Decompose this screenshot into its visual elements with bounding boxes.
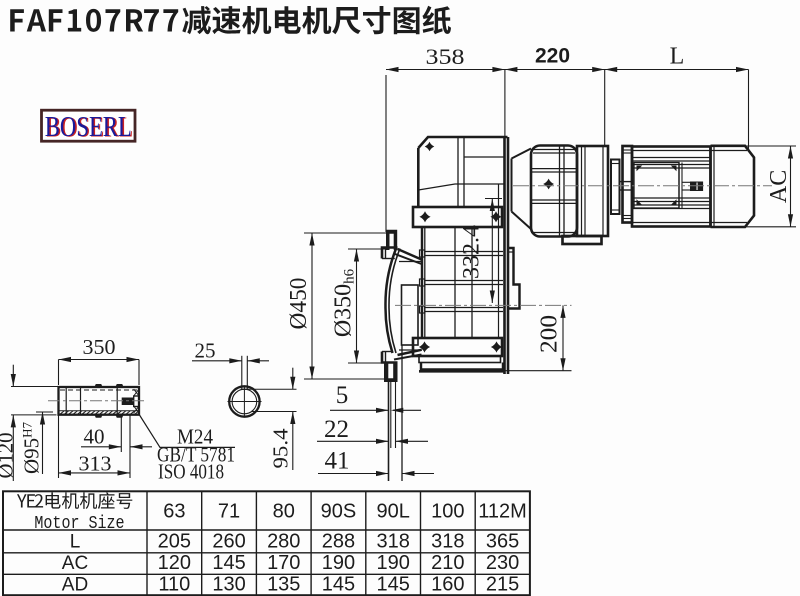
svg-text:332.4: 332.4 bbox=[459, 224, 484, 279]
svg-text:100: 100 bbox=[431, 501, 464, 523]
svg-text:Ø120: Ø120 bbox=[0, 433, 18, 479]
svg-text:40: 40 bbox=[84, 425, 105, 449]
svg-text:190: 190 bbox=[322, 552, 355, 574]
svg-text:170: 170 bbox=[267, 552, 300, 574]
svg-text:90L: 90L bbox=[376, 501, 409, 523]
svg-text:365: 365 bbox=[486, 531, 519, 553]
svg-text:230: 230 bbox=[486, 552, 519, 574]
svg-text:145: 145 bbox=[212, 552, 245, 574]
svg-text:AC: AC bbox=[62, 553, 88, 574]
svg-text:280: 280 bbox=[267, 531, 300, 553]
svg-text:313: 313 bbox=[79, 452, 112, 476]
svg-text:190: 190 bbox=[376, 552, 409, 574]
svg-text:205: 205 bbox=[158, 531, 191, 553]
svg-text:Ø350h6: Ø350h6 bbox=[331, 268, 358, 337]
svg-text:160: 160 bbox=[431, 574, 464, 596]
svg-text:5: 5 bbox=[336, 382, 349, 409]
svg-text:210: 210 bbox=[431, 552, 464, 574]
svg-text:41: 41 bbox=[325, 448, 350, 475]
svg-text:80: 80 bbox=[273, 501, 295, 523]
svg-text:318: 318 bbox=[431, 531, 464, 553]
svg-text:Ø450: Ø450 bbox=[286, 278, 312, 330]
svg-text:130: 130 bbox=[212, 574, 245, 596]
svg-text:63: 63 bbox=[163, 501, 185, 523]
svg-text:318: 318 bbox=[376, 531, 409, 553]
svg-text:Ø95H7: Ø95H7 bbox=[20, 421, 44, 474]
svg-text:BOSERL: BOSERL bbox=[45, 111, 132, 143]
svg-text:71: 71 bbox=[218, 501, 240, 523]
svg-text:145: 145 bbox=[322, 574, 355, 596]
svg-text:260: 260 bbox=[212, 531, 245, 553]
svg-text:358: 358 bbox=[426, 44, 465, 69]
svg-text:L: L bbox=[70, 532, 81, 553]
svg-text:288: 288 bbox=[322, 531, 355, 553]
svg-text:95.4: 95.4 bbox=[269, 428, 293, 469]
svg-text:110: 110 bbox=[158, 574, 190, 596]
svg-text:ISO 4018: ISO 4018 bbox=[158, 460, 224, 484]
svg-text:350: 350 bbox=[83, 335, 116, 359]
svg-text:22: 22 bbox=[324, 416, 349, 443]
svg-text:AC: AC bbox=[766, 170, 792, 203]
svg-text:200: 200 bbox=[537, 315, 563, 353]
svg-text:120: 120 bbox=[158, 552, 191, 574]
svg-text:L: L bbox=[670, 44, 685, 70]
svg-text:145: 145 bbox=[376, 574, 409, 596]
svg-text:220: 220 bbox=[535, 45, 570, 68]
svg-text:135: 135 bbox=[267, 574, 300, 596]
svg-text:25: 25 bbox=[195, 339, 216, 363]
svg-text:90S: 90S bbox=[321, 501, 357, 523]
svg-text:112M: 112M bbox=[478, 501, 527, 523]
svg-text:215: 215 bbox=[486, 574, 519, 596]
svg-text:AD: AD bbox=[62, 575, 88, 596]
